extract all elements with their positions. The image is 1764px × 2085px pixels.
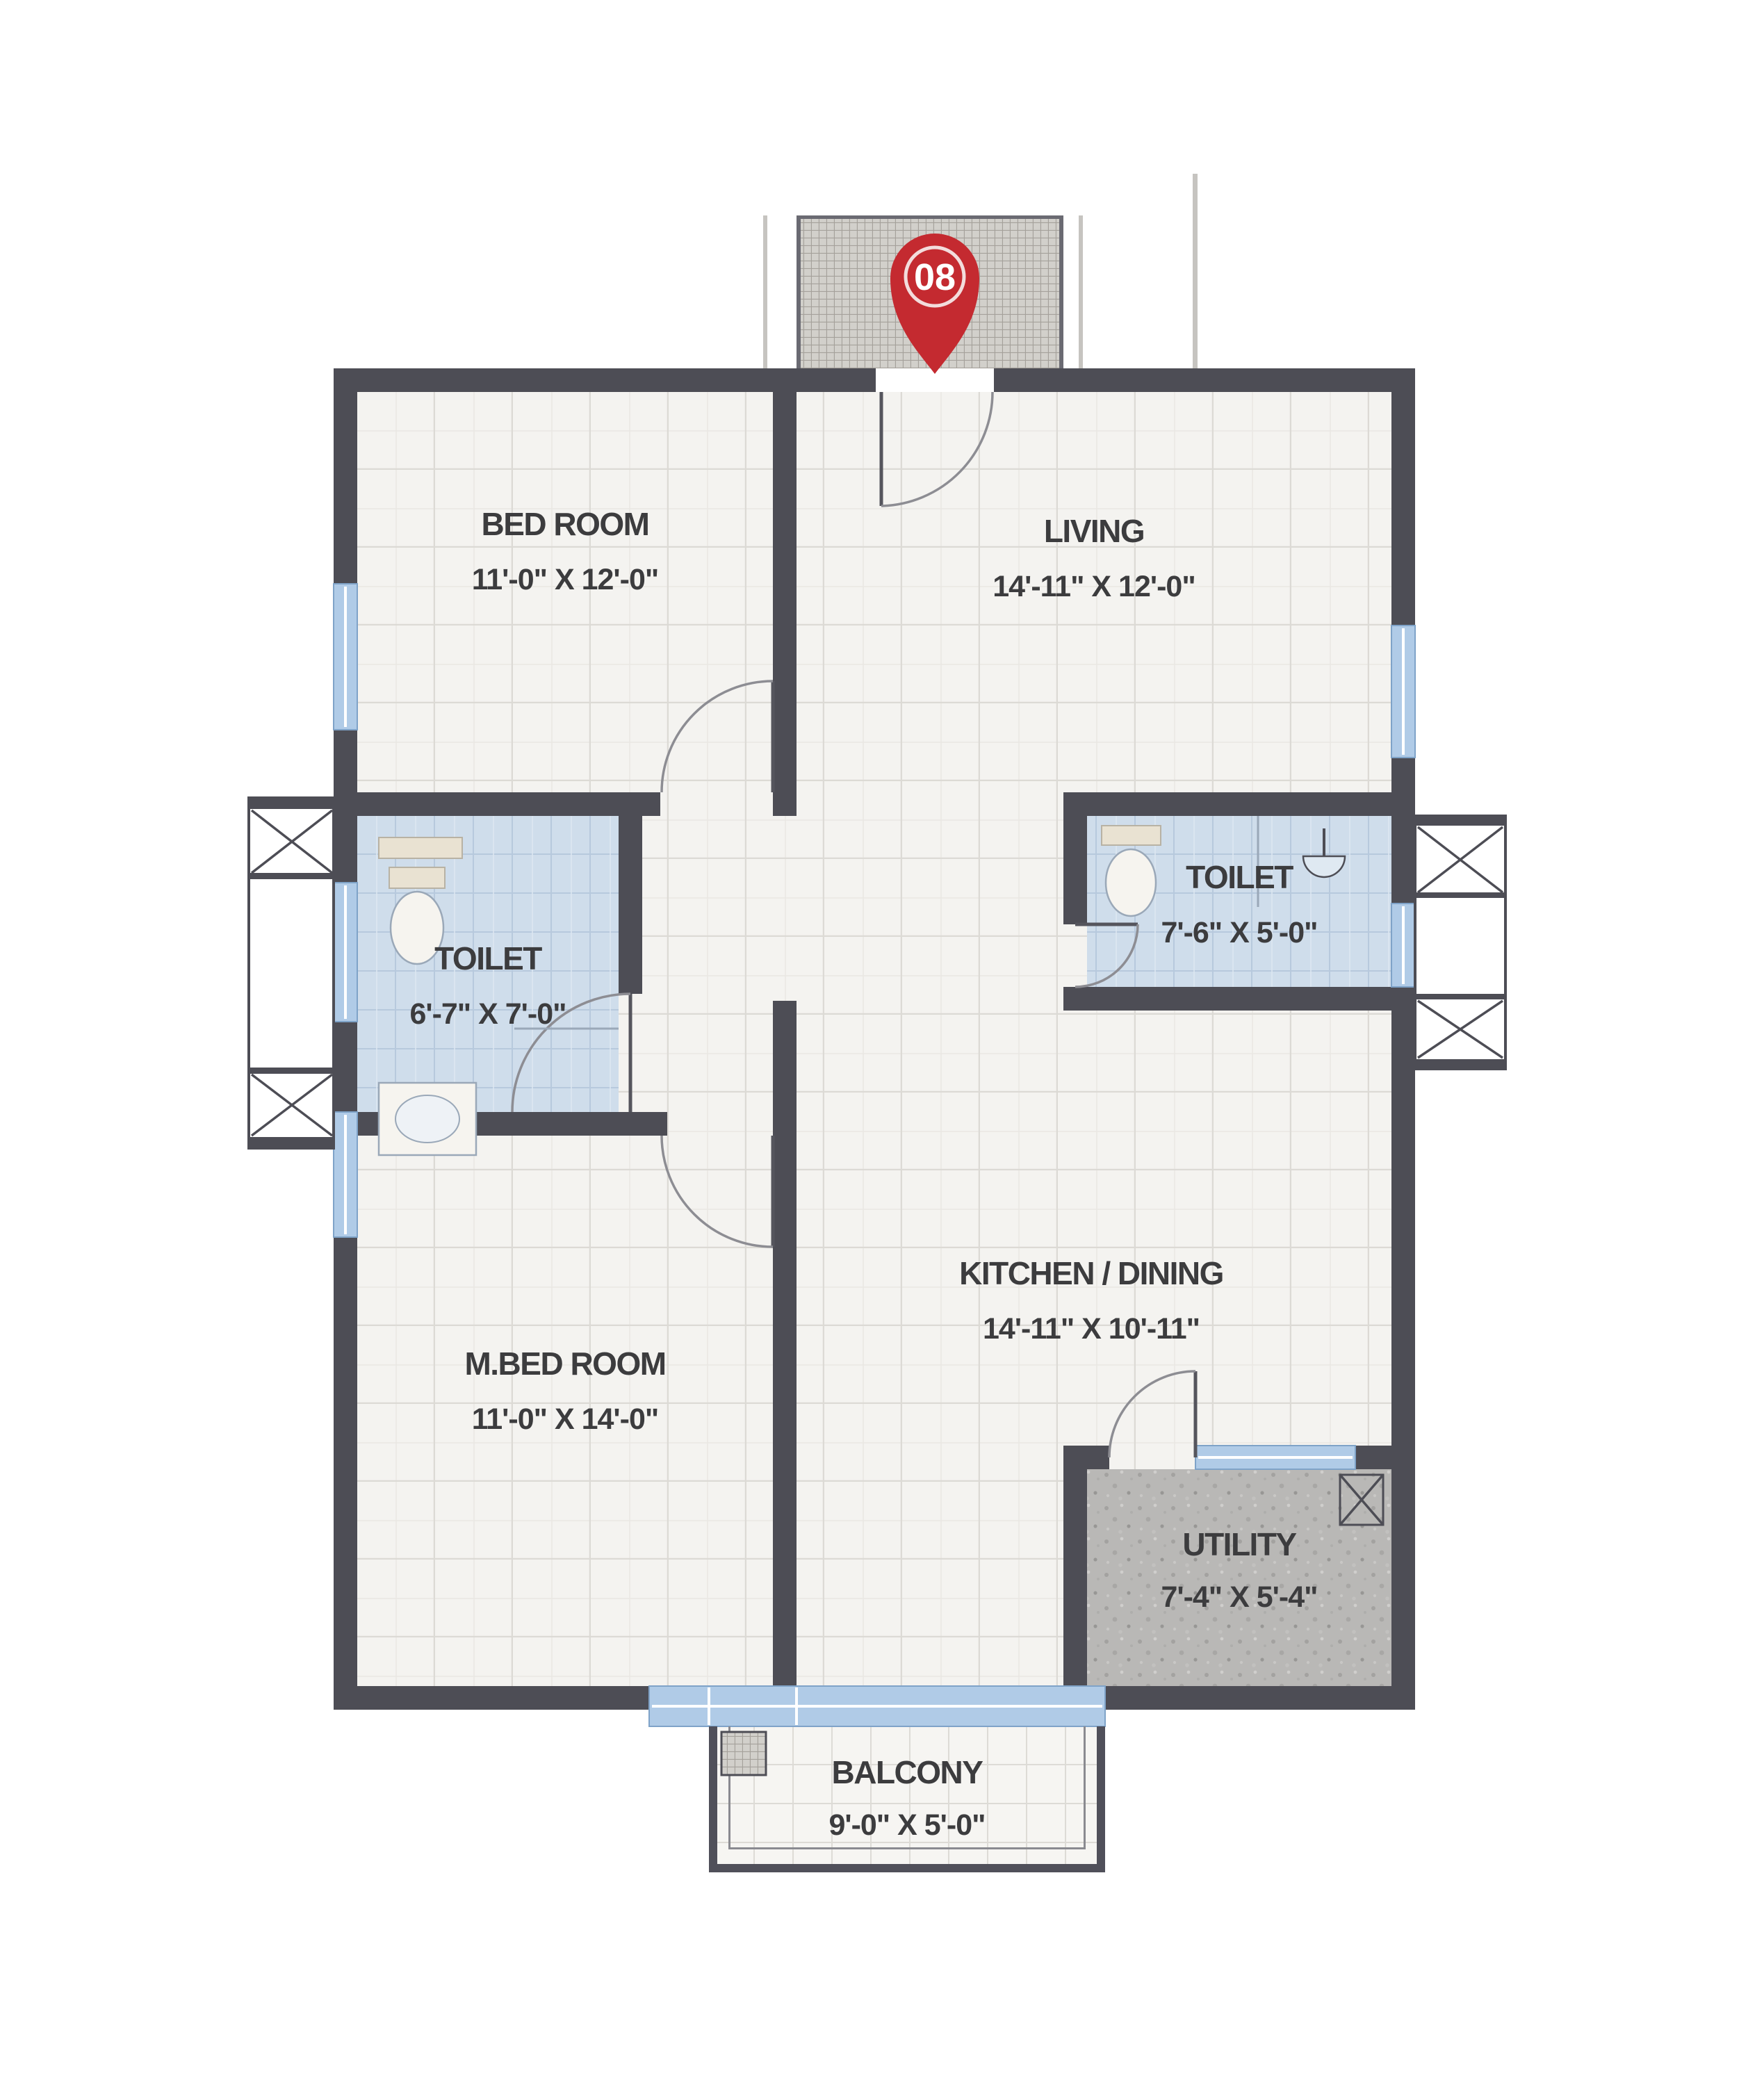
floor-plan-drawing: 08 BED ROOM 11'-0" X 12'-0" LIVING 14'-1… bbox=[0, 0, 1764, 2085]
balcony-rail-right bbox=[1097, 1726, 1105, 1872]
toilet-left-shelf bbox=[379, 837, 462, 858]
room-dimensions-toilet-left: 6'-7" X 7'-0" bbox=[409, 997, 566, 1031]
shaft-right-bar-lower bbox=[1415, 994, 1505, 999]
room-label-kitchen-dining: KITCHEN / DINING bbox=[959, 1255, 1223, 1291]
unit-number-badge: 08 bbox=[914, 256, 956, 298]
room-dimensions-bed-room: 11'-0" X 12'-0" bbox=[472, 563, 659, 596]
balcony-rail-bottom bbox=[709, 1864, 1105, 1872]
wall-top-left bbox=[334, 368, 876, 392]
balcony-drain-hatch bbox=[721, 1732, 766, 1775]
wall-toilet-left-right bbox=[619, 816, 642, 994]
wall-central-lower bbox=[773, 1001, 797, 1686]
toilet-left-wc-tank bbox=[389, 867, 445, 888]
wall-utility-top-b bbox=[1355, 1446, 1391, 1469]
wall-utility-left bbox=[1063, 1469, 1087, 1686]
shaft-left-bar-upper bbox=[249, 873, 334, 879]
exterior-line-right bbox=[1193, 174, 1198, 370]
room-dimensions-toilet-right: 7'-6" X 5'-0" bbox=[1161, 916, 1317, 949]
room-label-living: LIVING bbox=[1044, 513, 1144, 549]
corridor-outer-line-right bbox=[1079, 215, 1083, 368]
toilet-right-wc-icon bbox=[1106, 849, 1156, 916]
toilet-right-wc-tank bbox=[1102, 826, 1161, 845]
room-label-toilet-left: TOILET bbox=[434, 940, 542, 976]
room-label-balcony: BALCONY bbox=[832, 1754, 983, 1790]
floor-plan-canvas: 08 BED ROOM 11'-0" X 12'-0" LIVING 14'-1… bbox=[0, 0, 1764, 2085]
room-label-toilet-right: TOILET bbox=[1186, 859, 1293, 895]
toilet-left-washbasin-icon bbox=[395, 1095, 459, 1143]
shaft-left bbox=[249, 798, 334, 1148]
shaft-right bbox=[1415, 816, 1505, 1069]
shaft-left-box bbox=[249, 798, 334, 1148]
wall-utility-top-a bbox=[1063, 1446, 1109, 1469]
shaft-right-bar-bottom bbox=[1415, 1059, 1505, 1069]
corridor-left-line bbox=[797, 215, 801, 368]
balcony-floor bbox=[716, 1726, 1098, 1865]
room-dimensions-utility: 7'-4" X 5'-4" bbox=[1161, 1580, 1317, 1614]
room-label-utility: UTILITY bbox=[1182, 1526, 1296, 1562]
wall-central-upper bbox=[773, 392, 797, 816]
shaft-left-bar-top bbox=[249, 798, 334, 809]
corridor-top-line bbox=[797, 215, 1063, 219]
balcony-rail-inner-right bbox=[1084, 1726, 1086, 1849]
balcony-rail-inner-bottom bbox=[728, 1847, 1086, 1849]
shaft-left-bar-bottom bbox=[249, 1137, 334, 1148]
wall-right-outer bbox=[1391, 368, 1415, 1710]
shaft-right-bar-top bbox=[1415, 816, 1505, 826]
corridor-outer-line-left bbox=[763, 215, 767, 368]
corridor-right-line bbox=[1059, 215, 1063, 368]
balcony-rail-left bbox=[709, 1726, 717, 1872]
room-dimensions-master-bedroom: 11'-0" X 14'-0" bbox=[472, 1403, 659, 1436]
wall-bottom-left bbox=[334, 1686, 649, 1710]
wall-left-outer bbox=[334, 368, 357, 1710]
wall-toilet-right-bottom bbox=[1063, 987, 1391, 1011]
utility-floor bbox=[1087, 1469, 1391, 1686]
shaft-right-bar-upper bbox=[1415, 892, 1505, 898]
room-dimensions-kitchen-dining: 14'-11" X 10'-11" bbox=[983, 1312, 1200, 1346]
wall-bedroom-bottom bbox=[357, 792, 660, 816]
room-dimensions-balcony: 9'-0" X 5'-0" bbox=[828, 1808, 985, 1842]
room-label-bed-room: BED ROOM bbox=[482, 506, 649, 542]
wall-toilet-right-left bbox=[1063, 816, 1087, 924]
wall-bottom-right bbox=[1105, 1686, 1415, 1710]
shaft-right-box bbox=[1415, 816, 1505, 1069]
room-label-master-bedroom: M.BED ROOM bbox=[464, 1346, 665, 1382]
wall-top-right bbox=[994, 368, 1415, 392]
wall-toilet-right-top bbox=[1063, 792, 1391, 816]
shaft-left-bar-lower bbox=[249, 1068, 334, 1074]
room-dimensions-living: 14'-11" X 12'-0" bbox=[993, 570, 1195, 603]
